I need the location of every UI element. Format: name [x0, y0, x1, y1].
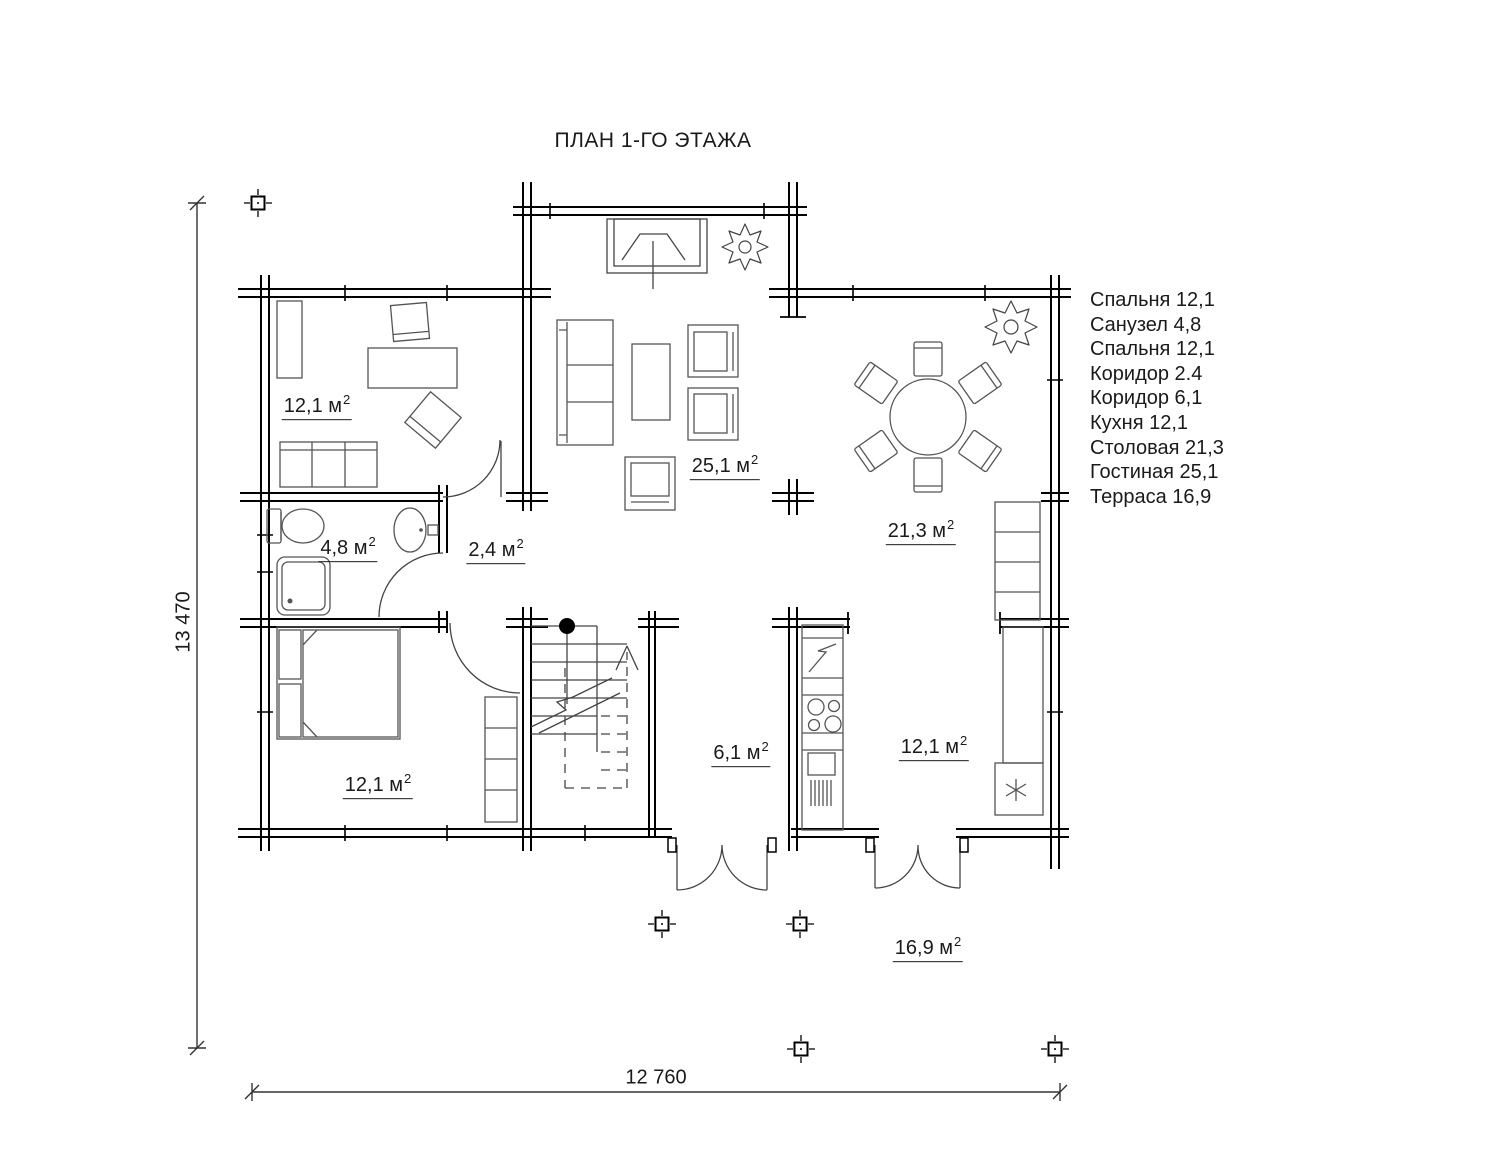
cooktop — [808, 699, 841, 732]
fireplace — [607, 219, 707, 289]
sink — [394, 508, 438, 552]
floor-plan-drawing — [0, 0, 1500, 1174]
legend-item: Столовая 21,3 — [1090, 436, 1224, 461]
sink-asterisk — [1006, 779, 1026, 801]
armchair-2 — [688, 388, 738, 440]
legend-item: Коридор 2.4 — [1090, 362, 1224, 387]
electric-symbol — [809, 644, 836, 672]
legend-item: Терраса 16,9 — [1090, 485, 1224, 510]
room-label-bedroom-top: 12,1 м2 — [282, 392, 352, 420]
column-marker — [648, 910, 676, 938]
armchair-rotated — [405, 392, 461, 448]
armchair-3 — [625, 457, 675, 510]
room-legend: Спальня 12,1 Санузел 4,8 Спальня 12,1 Ко… — [1090, 288, 1224, 509]
dimension-width-value: 12 760 — [625, 1067, 686, 1090]
column-marker — [787, 1035, 815, 1063]
dining-chair — [958, 362, 1002, 404]
dining-chair — [914, 342, 942, 376]
dining-chair — [854, 430, 898, 472]
room-label-corridor-hall: 6,1 м2 — [711, 739, 770, 767]
dining-chair — [854, 362, 898, 404]
plant-icon — [722, 224, 768, 270]
desk — [368, 348, 457, 388]
legend-item: Коридор 6,1 — [1090, 386, 1224, 411]
cabinet — [995, 502, 1040, 620]
shower — [277, 557, 330, 615]
plant-icon — [985, 301, 1037, 353]
legend-item: Гостиная 25,1 — [1090, 460, 1224, 485]
staircase — [531, 618, 638, 788]
stairs-break-line — [531, 678, 620, 733]
room-label-bathroom: 4,8 м2 — [318, 534, 377, 562]
legend-item: Кухня 12,1 — [1090, 411, 1224, 436]
column-marker — [1041, 1035, 1069, 1063]
furniture-dining — [854, 342, 1040, 620]
coffee-table — [632, 344, 670, 420]
sofa — [557, 320, 613, 445]
dining-chair — [914, 458, 942, 492]
room-label-corridor-small: 2,4 м2 — [466, 536, 525, 564]
toilet — [267, 509, 324, 543]
kitchen-counter-right — [995, 627, 1043, 815]
double-bed — [277, 627, 400, 739]
dimension-height-value: 13 470 — [173, 591, 196, 652]
desk-chair — [390, 302, 429, 341]
room-label-kitchen: 12,1 м2 — [899, 733, 969, 761]
room-label-bedroom-bottom: 12,1 м2 — [343, 771, 413, 799]
legend-item: Спальня 12,1 — [1090, 288, 1224, 313]
floor-plan-page: ПЛАН 1-ГО ЭТАЖА 12,1 м2 4,8 м2 2,4 м2 25… — [0, 0, 1500, 1174]
furniture-kitchen — [802, 625, 1043, 830]
dining-table — [890, 379, 966, 455]
armchair-1 — [688, 325, 738, 377]
dining-chair — [958, 430, 1002, 472]
dresser — [280, 442, 377, 487]
room-label-dining: 21,3 м2 — [886, 517, 956, 545]
room-label-living: 25,1 м2 — [690, 452, 760, 480]
room-label-terrace: 16,9 м2 — [893, 934, 963, 962]
column-marker — [786, 910, 814, 938]
wardrobe — [485, 697, 517, 822]
legend-item: Санузел 4,8 — [1090, 313, 1224, 338]
closet — [277, 301, 302, 378]
fridge — [808, 753, 835, 806]
page-title: ПЛАН 1-ГО ЭТАЖА — [554, 129, 751, 153]
kitchen-appliance-column — [802, 625, 843, 830]
legend-item: Спальня 12,1 — [1090, 337, 1224, 362]
column-marker — [244, 189, 272, 217]
doors — [379, 440, 968, 890]
newel-post — [559, 618, 575, 634]
